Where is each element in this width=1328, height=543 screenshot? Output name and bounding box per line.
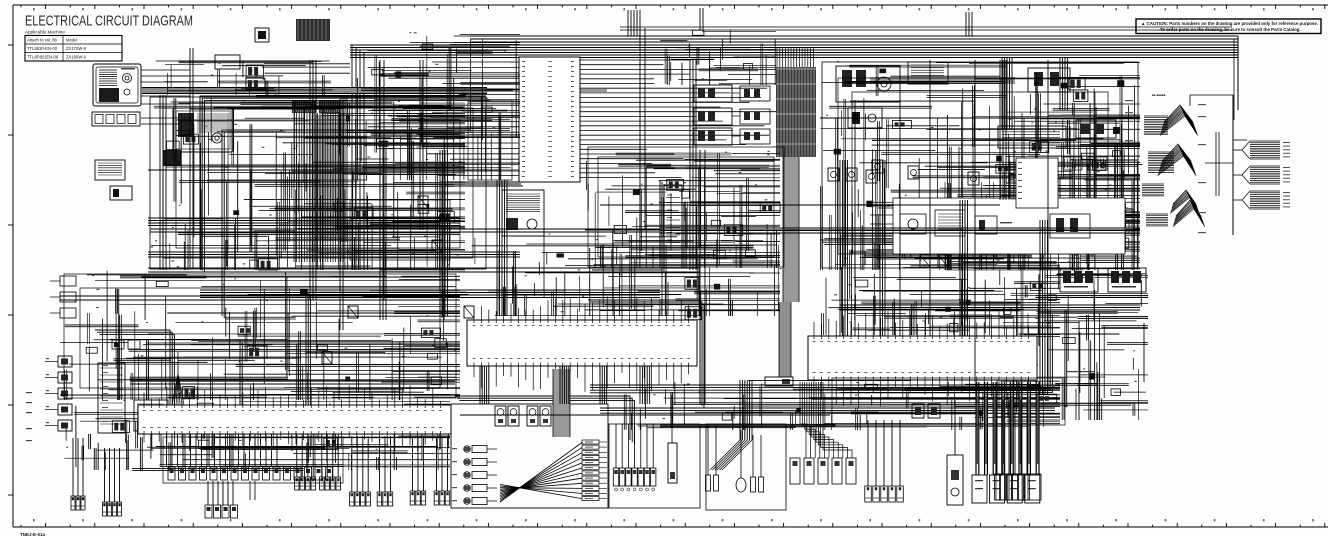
- svg-text:ZX170W-6: ZX170W-6: [66, 46, 87, 51]
- svg-text:Applicable Machine: Applicable Machine: [25, 30, 65, 35]
- svg-text:Attach to vol. fib: Attach to vol. fib: [27, 38, 57, 43]
- svg-text:Model: Model: [66, 38, 77, 43]
- svg-text:▲ CAUTION: Parts numbers on th: ▲ CAUTION: Parts numbers on the drawing …: [1141, 21, 1318, 26]
- svg-text:TTL8830-EN-00: TTL8830-EN-00: [27, 46, 58, 51]
- svg-text:To order parts on the drawing,: To order parts on the drawing, be sure t…: [1160, 27, 1301, 32]
- svg-text:ELECTRICAL CIRCUIT DIAGRAM: ELECTRICAL CIRCUIT DIAGRAM: [25, 13, 193, 30]
- svg-text:TNEJ-E-01a: TNEJ-E-01a: [20, 532, 46, 537]
- svg-text:ZX190W-6: ZX190W-6: [66, 55, 87, 60]
- svg-text:TTL8P80JEN-06: TTL8P80JEN-06: [27, 55, 59, 60]
- svg-text:■■ ■■■■■: ■■ ■■■■■: [1152, 93, 1166, 97]
